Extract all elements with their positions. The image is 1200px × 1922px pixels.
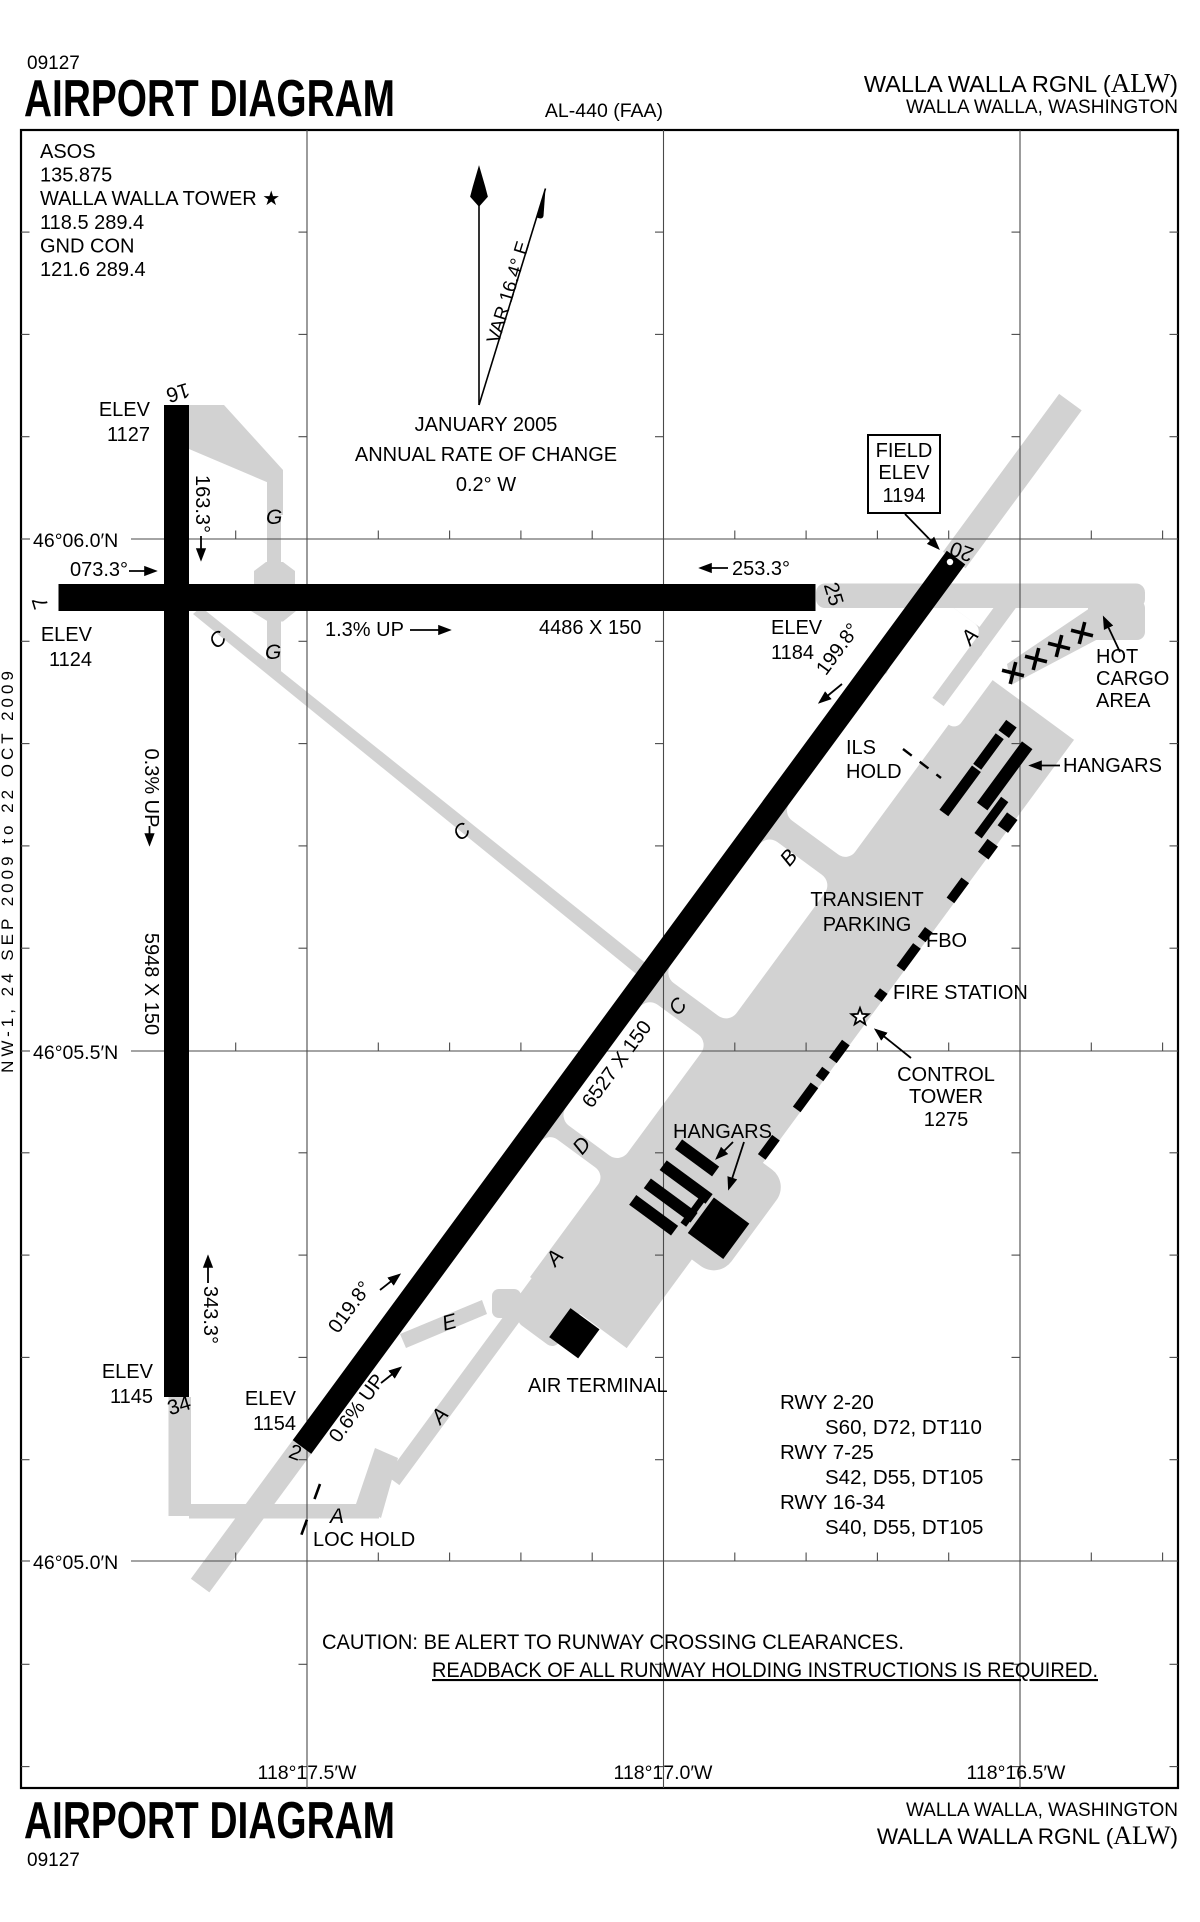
svg-text:ELEV: ELEV <box>878 462 930 484</box>
svg-text:46°05.5′N: 46°05.5′N <box>33 1042 118 1064</box>
svg-text:PARKING: PARKING <box>823 914 912 936</box>
svg-text:1127: 1127 <box>107 424 150 446</box>
svg-text:WALLA WALLA TOWER ★: WALLA WALLA TOWER ★ <box>40 188 280 210</box>
svg-text:0.3% UP: 0.3% UP <box>140 749 162 828</box>
svg-text:343.3°: 343.3° <box>199 1286 221 1344</box>
svg-text:118.5 289.4: 118.5 289.4 <box>40 212 144 234</box>
svg-text:S60, D72, DT110: S60, D72, DT110 <box>825 1416 982 1439</box>
svg-text:1184: 1184 <box>771 642 814 664</box>
svg-text:HOT: HOT <box>1096 646 1138 668</box>
svg-text:ELEV: ELEV <box>245 1388 297 1410</box>
svg-text:AREA: AREA <box>1096 690 1151 712</box>
svg-text:NW-1, 24 SEP 2009 to 22 OCT 20: NW-1, 24 SEP 2009 to 22 OCT 2009 <box>0 667 17 1073</box>
svg-text:ELEV: ELEV <box>102 1361 154 1383</box>
svg-text:ANNUAL RATE OF CHANGE: ANNUAL RATE OF CHANGE <box>355 444 617 466</box>
svg-text:09127: 09127 <box>27 1850 80 1871</box>
svg-text:LOC HOLD: LOC HOLD <box>313 1529 415 1551</box>
svg-text:135.875: 135.875 <box>40 165 112 187</box>
svg-text:TRANSIENT: TRANSIENT <box>810 889 923 911</box>
svg-text:HOLD: HOLD <box>846 761 902 783</box>
svg-text:ASOS: ASOS <box>40 141 96 163</box>
svg-text:ELEV: ELEV <box>99 399 151 421</box>
svg-text:118°17.5′W: 118°17.5′W <box>258 1762 357 1784</box>
svg-text:RWY 7-25: RWY 7-25 <box>780 1441 874 1464</box>
svg-text:1145: 1145 <box>110 1386 153 1408</box>
svg-text:READBACK OF ALL RUNWAY HOLDING: READBACK OF ALL RUNWAY HOLDING INSTRUCTI… <box>432 1659 1098 1682</box>
svg-text:S40, D55, DT105: S40, D55, DT105 <box>825 1516 983 1539</box>
svg-text:CARGO: CARGO <box>1096 668 1169 690</box>
svg-text:1.3% UP: 1.3% UP <box>325 619 404 641</box>
svg-text:121.6 289.4: 121.6 289.4 <box>40 259 146 281</box>
svg-text:118°17.0′W: 118°17.0′W <box>614 1762 713 1784</box>
svg-text:HANGARS: HANGARS <box>1063 755 1162 777</box>
svg-text:073.3°: 073.3° <box>70 559 128 581</box>
svg-text:118°16.5′W: 118°16.5′W <box>967 1762 1066 1784</box>
svg-text:WALLA WALLA, WASHINGTON: WALLA WALLA, WASHINGTON <box>906 1800 1178 1821</box>
svg-text:FIRE STATION: FIRE STATION <box>893 982 1028 1004</box>
svg-text:A: A <box>328 1505 344 1528</box>
svg-text:46°05.0′N: 46°05.0′N <box>33 1552 118 1574</box>
svg-text:1124: 1124 <box>49 649 92 671</box>
svg-text:S42, D55, DT105: S42, D55, DT105 <box>825 1466 983 1489</box>
svg-text:CAUTION: BE ALERT TO RUNWAY CR: CAUTION: BE ALERT TO RUNWAY CROSSING CLE… <box>322 1631 904 1654</box>
svg-text:GND CON: GND CON <box>40 235 134 257</box>
svg-text:G: G <box>265 641 281 664</box>
svg-text:163.3°: 163.3° <box>191 475 213 533</box>
svg-text:RWY 16-34: RWY 16-34 <box>780 1491 885 1514</box>
svg-text:WALLA WALLA, WASHINGTON: WALLA WALLA, WASHINGTON <box>906 97 1178 118</box>
svg-text:AIRPORT DIAGRAM: AIRPORT DIAGRAM <box>24 70 395 128</box>
svg-text:1275: 1275 <box>924 1109 969 1131</box>
svg-text:CONTROL: CONTROL <box>897 1064 995 1086</box>
svg-text:HANGARS: HANGARS <box>673 1121 772 1143</box>
svg-text:WALLA WALLA RGNL (ALW): WALLA WALLA RGNL (ALW) <box>864 68 1178 98</box>
svg-text:1154: 1154 <box>253 1413 296 1435</box>
svg-text:1194: 1194 <box>882 485 925 507</box>
svg-text:5948 X 150: 5948 X 150 <box>140 933 162 1035</box>
svg-text:AIR TERMINAL: AIR TERMINAL <box>528 1375 668 1397</box>
svg-text:ELEV: ELEV <box>771 617 823 639</box>
svg-text:AIRPORT DIAGRAM: AIRPORT DIAGRAM <box>24 1792 395 1850</box>
svg-text:WALLA WALLA RGNL (ALW): WALLA WALLA RGNL (ALW) <box>877 1821 1178 1850</box>
svg-text:G: G <box>266 506 282 529</box>
svg-text:RWY 2-20: RWY 2-20 <box>780 1391 874 1414</box>
svg-text:46°06.0′N: 46°06.0′N <box>33 530 118 552</box>
svg-text:253.3°: 253.3° <box>732 558 790 580</box>
svg-text:ELEV: ELEV <box>41 624 93 646</box>
svg-text:4486 X 150: 4486 X 150 <box>539 617 641 639</box>
svg-text:FIELD: FIELD <box>876 440 933 462</box>
svg-text:TOWER: TOWER <box>909 1086 983 1108</box>
svg-text:AL-440 (FAA): AL-440 (FAA) <box>545 100 663 122</box>
svg-text:FBO: FBO <box>926 930 967 952</box>
svg-text:JANUARY 2005: JANUARY 2005 <box>415 414 558 436</box>
svg-text:0.2° W: 0.2° W <box>456 474 516 496</box>
svg-text:ILS: ILS <box>846 737 876 759</box>
